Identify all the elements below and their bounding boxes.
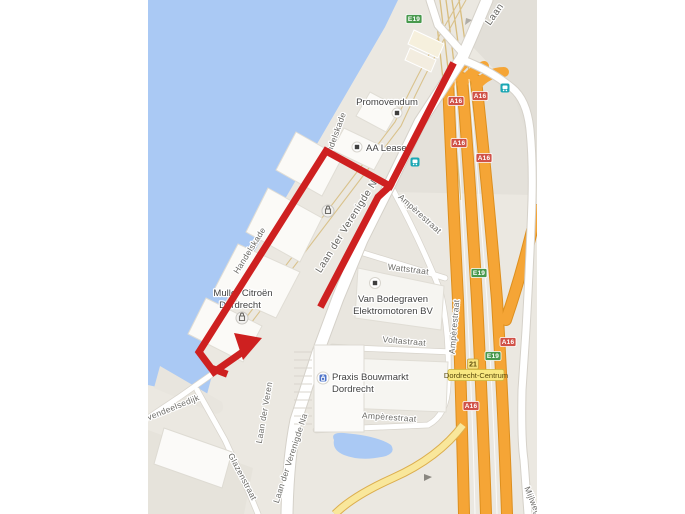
poi-label-aa-lease: AA Lease bbox=[366, 143, 407, 154]
screenshot-page: Laan ndelskade Handelskade Laan der Vere… bbox=[0, 0, 685, 514]
transit-station-icon[interactable] bbox=[411, 158, 420, 167]
svg-text:E19: E19 bbox=[487, 353, 499, 360]
building-marker-icon[interactable] bbox=[392, 108, 402, 118]
a16-shield: A16 bbox=[472, 92, 488, 101]
building-marker-icon[interactable] bbox=[352, 142, 362, 152]
a16-shield: A16 bbox=[451, 139, 467, 148]
poi-label-praxis-line1: Praxis Bouwmarkt bbox=[332, 372, 409, 383]
e19-shield: E19 bbox=[471, 269, 487, 278]
shopping-bag-icon[interactable] bbox=[317, 372, 329, 384]
shopping-bag-icon[interactable] bbox=[322, 205, 334, 217]
poi-label-vanbodegraven-line1: Van Bodegraven bbox=[358, 294, 428, 305]
transit-station-icon[interactable] bbox=[501, 84, 510, 93]
building-marker-icon[interactable] bbox=[370, 278, 381, 289]
svg-text:A16: A16 bbox=[502, 339, 515, 346]
exit-destination: Dordrecht-Centrum bbox=[444, 371, 508, 380]
map-canvas[interactable]: Laan ndelskade Handelskade Laan der Vere… bbox=[148, 0, 537, 514]
map-viewport[interactable]: Laan ndelskade Handelskade Laan der Vere… bbox=[148, 0, 537, 514]
poi-label-promovendum: Promovendum bbox=[356, 97, 418, 108]
poi-label-praxis-line2: Dordrecht bbox=[332, 384, 374, 395]
a16-shield: A16 bbox=[476, 154, 492, 163]
svg-text:A16: A16 bbox=[450, 98, 463, 105]
a16-shield: A16 bbox=[500, 338, 516, 347]
svg-text:A16: A16 bbox=[465, 403, 478, 410]
svg-text:A16: A16 bbox=[474, 93, 487, 100]
exit-number: 21 bbox=[469, 362, 477, 369]
e19-shield: E19 bbox=[485, 352, 501, 361]
a16-shield: A16 bbox=[463, 402, 479, 411]
svg-text:E19: E19 bbox=[473, 270, 485, 277]
svg-text:E19: E19 bbox=[408, 16, 420, 23]
poi-label-muller-line1: Muller Citroën bbox=[213, 288, 272, 299]
svg-text:A16: A16 bbox=[453, 140, 466, 147]
svg-text:A16: A16 bbox=[478, 155, 491, 162]
poi-label-vanbodegraven-line2: Elektromotoren BV bbox=[353, 306, 433, 317]
a16-shield: A16 bbox=[448, 97, 464, 106]
shopping-bag-icon[interactable] bbox=[236, 312, 248, 324]
e19-shield: E19 bbox=[406, 15, 422, 24]
